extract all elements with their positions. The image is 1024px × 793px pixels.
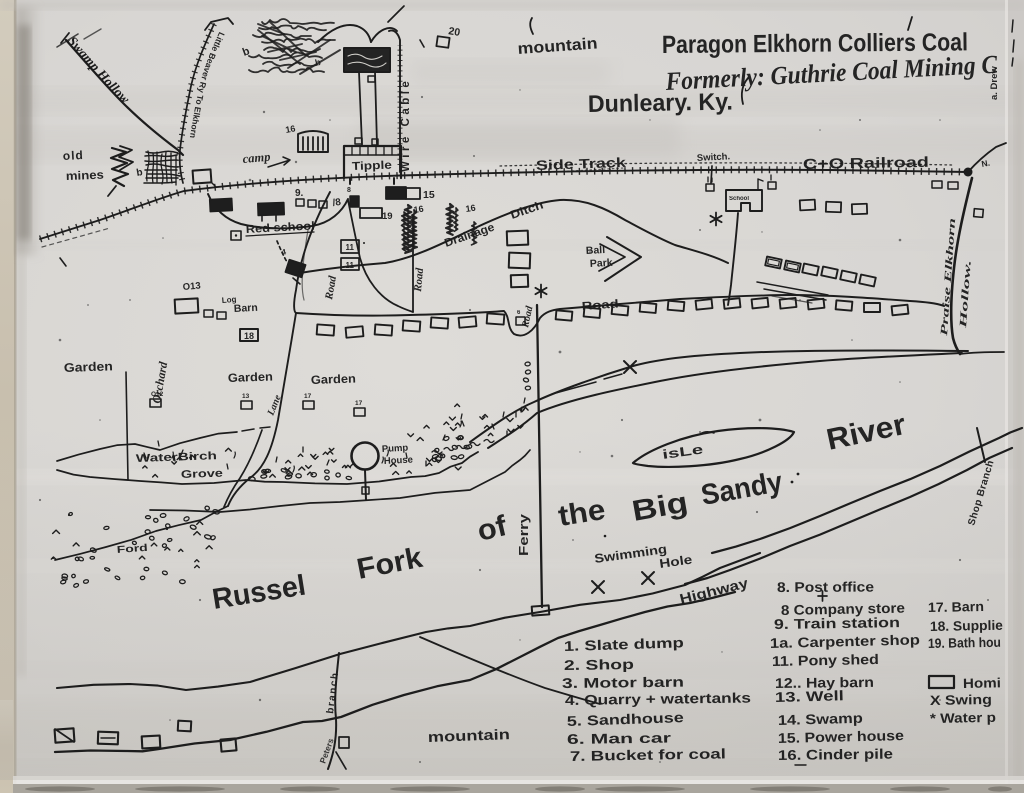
svg-text:17. Barn: 17. Barn: [928, 599, 984, 615]
svg-text:18. Supplie: 18. Supplie: [930, 618, 1004, 634]
svg-text:House: House: [384, 454, 414, 467]
svg-text:X Swing: X Swing: [930, 692, 992, 708]
svg-text:Garden: Garden: [228, 369, 273, 385]
svg-text:9.: 9.: [295, 188, 304, 199]
svg-text:16. Cinder pile: 16. Cinder pile: [778, 746, 893, 763]
svg-text:3. Motor barn: 3. Motor barn: [562, 674, 684, 691]
svg-text:old: old: [62, 148, 84, 163]
svg-text:O12: O12: [151, 391, 164, 398]
svg-text:17: 17: [304, 393, 312, 400]
svg-text:Garden: Garden: [64, 359, 113, 375]
svg-text:2. Shop: 2. Shop: [564, 656, 634, 673]
svg-text:Tipple: Tipple: [352, 160, 392, 173]
svg-text:Pump: Pump: [382, 443, 409, 455]
svg-text:15. Power house: 15. Power house: [778, 727, 905, 746]
svg-text:* Water p: * Water p: [930, 710, 996, 726]
svg-text:Wire Cable: Wire Cable: [400, 78, 412, 172]
svg-text:8: 8: [347, 187, 351, 194]
svg-text:Ferry: Ferry: [517, 514, 531, 556]
svg-text:Garden: Garden: [311, 371, 356, 387]
svg-text:Barn: Barn: [234, 302, 259, 315]
svg-text:Road: Road: [412, 267, 426, 293]
svg-text:16: 16: [465, 203, 476, 214]
svg-text:Homi: Homi: [963, 675, 1001, 691]
svg-text:Ford: Ford: [116, 543, 148, 556]
svg-text:N.: N.: [981, 158, 991, 169]
svg-text:9. Train station: 9. Train station: [774, 614, 900, 632]
svg-text:4. Quarry + watertanks: 4. Quarry + watertanks: [565, 689, 751, 708]
svg-text:13. Well: 13. Well: [775, 687, 844, 705]
svg-text:19. Bath hou: 19. Bath hou: [928, 635, 1001, 651]
svg-text:camp: camp: [242, 150, 271, 166]
svg-text:School: School: [729, 196, 749, 202]
svg-text:6. Man car: 6. Man car: [567, 729, 672, 747]
svg-text:16: 16: [285, 123, 297, 135]
svg-text:O13: O13: [182, 280, 201, 293]
svg-text:15: 15: [423, 189, 435, 201]
svg-text:18: 18: [244, 331, 254, 341]
svg-text:17: 17: [355, 400, 363, 407]
svg-text:7. Bucket for coal: 7. Bucket for coal: [570, 745, 726, 764]
svg-text:Ball: Ball: [586, 244, 606, 257]
svg-text:16: 16: [413, 204, 424, 215]
svg-text:mines: mines: [66, 168, 105, 183]
svg-text:20: 20: [447, 25, 461, 39]
svg-text:C+O Railroad: C+O Railroad: [803, 155, 929, 173]
svg-text:11. Pony shed: 11. Pony shed: [772, 651, 879, 669]
svg-text:Dunleary. Ky.: Dunleary. Ky.: [588, 88, 733, 118]
svg-text:8. Post office: 8. Post office: [777, 579, 874, 595]
svg-text:14. Swamp: 14. Swamp: [778, 710, 863, 728]
svg-text:11: 11: [346, 243, 355, 252]
svg-text:Grove: Grove: [181, 468, 223, 481]
svg-text:13: 13: [242, 393, 250, 400]
svg-text:mountain: mountain: [428, 727, 511, 746]
svg-text:Park: Park: [590, 257, 614, 270]
svg-text:19: 19: [382, 211, 393, 222]
svg-text:a. Drew: a. Drew: [989, 66, 1000, 100]
svg-text:Switch.: Switch.: [697, 151, 731, 164]
